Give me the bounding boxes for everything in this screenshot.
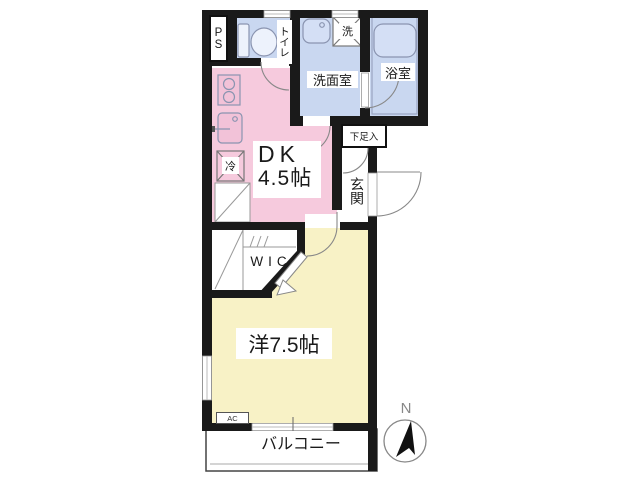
pipe-space-label: PS <box>209 15 228 62</box>
dk-label: DK 4.5帖 <box>253 141 321 198</box>
western-room-label: 洋7.5帖 <box>236 328 332 359</box>
entrance-door-swing <box>377 172 421 216</box>
toilet-label: トイレ <box>277 20 292 64</box>
wic-label: WIC <box>243 251 299 271</box>
compass <box>384 420 426 462</box>
entrance-door-leaf <box>368 173 377 216</box>
washer-label: 洗 <box>339 23 356 39</box>
bathtub <box>374 24 416 57</box>
fridge-label: 冷 <box>222 157 239 174</box>
ac-label: AC <box>216 412 249 424</box>
kitchen-sink <box>218 113 242 143</box>
washroom-label: 洗面室 <box>307 71 358 88</box>
balcony-label: バルコニー <box>255 431 347 453</box>
toilet-bowl <box>251 28 277 56</box>
compass-north-label: N <box>396 398 416 418</box>
washbasin <box>303 19 330 43</box>
shoe-cabinet-label: 下足入 <box>341 124 387 148</box>
bathroom-label: 浴室 <box>381 63 415 81</box>
toilet-tank <box>238 24 249 57</box>
floor-plan: PS トイレ 洗 洗面室 浴室 DK 4.5帖 冷 下足入 玄関 WIC 洋7.… <box>0 0 640 480</box>
entrance-label: 玄関 <box>347 166 367 216</box>
bathroom-door-leaf <box>362 73 369 107</box>
washroom-door-opening <box>303 116 330 126</box>
